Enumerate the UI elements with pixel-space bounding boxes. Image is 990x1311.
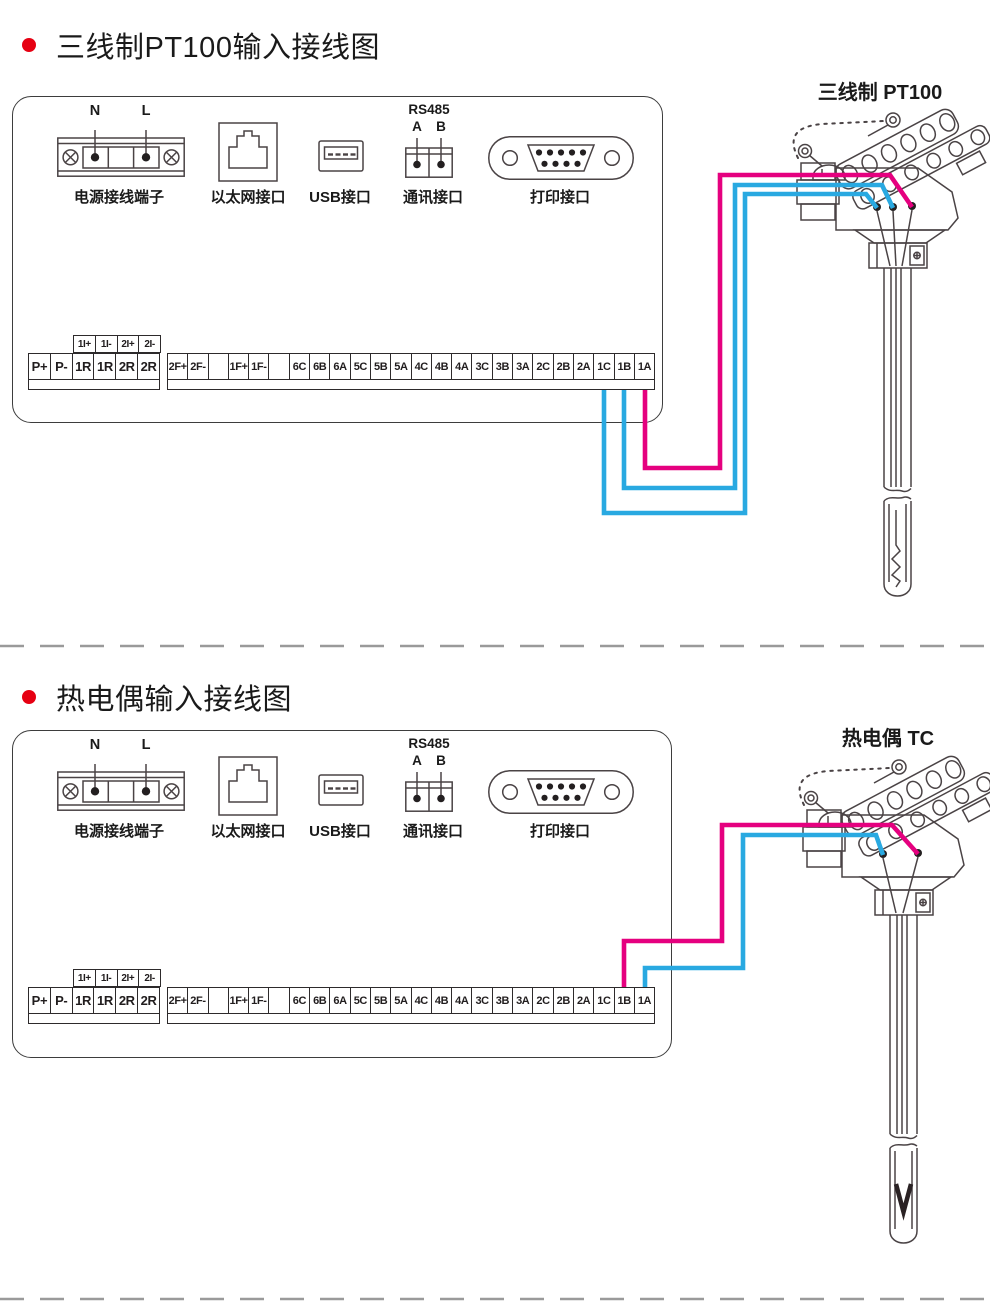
terminal-cell: 2I+ <box>117 336 139 352</box>
sensor-type-label: 三线制 PT100 <box>790 76 970 105</box>
terminal-cell: 3B <box>492 988 512 1013</box>
power-n-label: N <box>85 103 105 119</box>
rs485-label: 通讯接口 <box>383 820 483 841</box>
terminal-cell: 3C <box>471 354 491 379</box>
terminal-cell: 1F- <box>248 988 268 1013</box>
rs485-label: 通讯接口 <box>383 186 483 207</box>
terminal-cell: 1F- <box>248 354 268 379</box>
terminal-cell: 6A <box>329 988 349 1013</box>
terminal-cell: 4B <box>431 988 451 1013</box>
terminal-cell: 5B <box>370 354 390 379</box>
terminal-strip-base <box>167 380 655 390</box>
power-n-label: N <box>85 737 105 753</box>
terminal-cell: 5B <box>370 988 390 1013</box>
db9-printer-port-icon <box>488 136 634 180</box>
ethernet-port-icon <box>218 756 278 816</box>
terminal-strip-current: 1I+1I-2I+2I- <box>73 335 161 353</box>
terminal-cell: 2B <box>553 354 573 379</box>
usb-label: USB接口 <box>290 186 390 207</box>
db9-printer-port-icon <box>488 770 634 814</box>
terminal-cell: 3B <box>492 354 512 379</box>
bullet-icon <box>22 690 36 704</box>
terminal-cell <box>208 354 228 379</box>
printer-label: 打印接口 <box>500 820 620 841</box>
terminal-cell: 6C <box>289 354 309 379</box>
terminal-cell: P+ <box>29 354 50 379</box>
terminal-cell: 4A <box>451 988 471 1013</box>
terminal-cell: 1B <box>614 354 634 379</box>
section-thermocouple: 热电偶输入接线图 N L RS485 A B 电源接线端子 以太网接口 USB接… <box>0 634 990 1311</box>
terminal-strip-relay: P+P-1R1R2R2R <box>28 353 160 380</box>
terminal-cell: 2F+ <box>168 988 187 1013</box>
terminal-cell: 1R <box>72 354 94 379</box>
section-title: 热电偶输入接线图 <box>56 676 292 718</box>
terminal-cell: 5C <box>350 354 370 379</box>
terminal-cell: 2A <box>573 988 593 1013</box>
usb-label: USB接口 <box>290 820 390 841</box>
terminal-cell: 2I- <box>138 336 160 352</box>
power-terminal-label: 电源接线端子 <box>49 820 189 841</box>
terminal-cell: 1C <box>593 354 613 379</box>
terminal-strip-base <box>28 380 160 390</box>
power-terminal-icon <box>57 764 185 811</box>
terminal-cell: 4B <box>431 354 451 379</box>
rs485-port-icon <box>405 772 453 812</box>
terminal-cell: 4C <box>411 988 431 1013</box>
terminal-cell: 1I- <box>95 336 117 352</box>
terminal-cell: 5A <box>390 988 410 1013</box>
terminal-cell: 2R <box>137 354 159 379</box>
terminal-cell: 1R <box>72 988 94 1013</box>
terminal-cell: 5A <box>390 354 410 379</box>
terminal-cell: 1R <box>93 988 115 1013</box>
terminal-cell: 4C <box>411 354 431 379</box>
bullet-icon <box>22 38 36 52</box>
power-terminal-icon <box>57 130 185 177</box>
rs485-port-icon <box>405 138 453 178</box>
terminal-cell: 1I+ <box>74 970 95 986</box>
terminal-strip-main: 2F+2F-1F+1F-6C6B6A5C5B5A4C4B4A3C3B3A2C2B… <box>167 987 655 1014</box>
section-title-row: 热电偶输入接线图 <box>22 676 292 718</box>
terminal-cell: 2R <box>115 988 137 1013</box>
terminal-cell: P+ <box>29 988 50 1013</box>
terminal-strip-relay: P+P-1R1R2R2R <box>28 987 160 1014</box>
section-pt100: 三线制PT100输入接线图 N L RS485 A B 电源接线端子 以太网接口… <box>0 0 990 648</box>
terminal-cell: 2B <box>553 988 573 1013</box>
terminal-cell: 6B <box>309 354 329 379</box>
power-terminal-label: 电源接线端子 <box>49 186 189 207</box>
rs485-a-label: A <box>408 119 426 134</box>
terminal-strip-base <box>167 1014 655 1024</box>
terminal-cell: 6A <box>329 354 349 379</box>
terminal-strip-base <box>28 1014 160 1024</box>
power-l-label: L <box>136 737 156 753</box>
printer-label: 打印接口 <box>500 186 620 207</box>
terminal-cell: 1R <box>93 354 115 379</box>
terminal-cell: 3A <box>512 988 532 1013</box>
terminal-strip-main: 2F+2F-1F+1F-6C6B6A5C5B5A4C4B4A3C3B3A2C2B… <box>167 353 655 380</box>
terminal-cell: 2I+ <box>117 970 139 986</box>
terminal-cell: 3C <box>471 988 491 1013</box>
terminal-cell: 2F- <box>187 354 207 379</box>
terminal-cell: 2C <box>532 354 552 379</box>
terminal-cell: P- <box>50 354 72 379</box>
terminal-cell: 6B <box>309 988 329 1013</box>
terminal-cell: 1A <box>634 988 654 1013</box>
terminal-cell: 2C <box>532 988 552 1013</box>
terminal-cell <box>208 988 228 1013</box>
terminal-cell: 1A <box>634 354 654 379</box>
terminal-cell: 4A <box>451 354 471 379</box>
terminal-cell: 2F- <box>187 988 207 1013</box>
terminal-cell: 6C <box>289 988 309 1013</box>
rs485-b-label: B <box>432 119 450 134</box>
usb-port-icon <box>318 140 364 172</box>
terminal-cell: 1B <box>614 988 634 1013</box>
section-title-row: 三线制PT100输入接线图 <box>22 24 380 66</box>
wiring-diagram-page: 三线制PT100输入接线图 N L RS485 A B 电源接线端子 以太网接口… <box>0 0 990 1311</box>
terminal-cell: 2R <box>115 354 137 379</box>
terminal-cell: 3A <box>512 354 532 379</box>
terminal-strip-current: 1I+1I-2I+2I- <box>73 969 161 987</box>
rs485-a-label: A <box>408 753 426 768</box>
rs485-bus-label: RS485 <box>398 102 460 117</box>
terminal-cell: 2A <box>573 354 593 379</box>
terminal-cell <box>268 988 288 1013</box>
rs485-bus-label: RS485 <box>398 736 460 751</box>
terminal-cell: 1I+ <box>74 336 95 352</box>
power-l-label: L <box>136 103 156 119</box>
terminal-cell: 1I- <box>95 970 117 986</box>
rs485-b-label: B <box>432 753 450 768</box>
terminal-cell: 2R <box>137 988 159 1013</box>
terminal-cell: 1F+ <box>228 988 248 1013</box>
terminal-cell: 1F+ <box>228 354 248 379</box>
section-title: 三线制PT100输入接线图 <box>56 24 380 66</box>
terminal-cell: 2F+ <box>168 354 187 379</box>
terminal-cell: 2I- <box>138 970 160 986</box>
terminal-cell: 5C <box>350 988 370 1013</box>
terminal-cell: 1C <box>593 988 613 1013</box>
sensor-type-label: 热电偶 TC <box>808 722 968 751</box>
usb-port-icon <box>318 774 364 806</box>
terminal-cell: P- <box>50 988 72 1013</box>
ethernet-port-icon <box>218 122 278 182</box>
terminal-cell <box>268 354 288 379</box>
